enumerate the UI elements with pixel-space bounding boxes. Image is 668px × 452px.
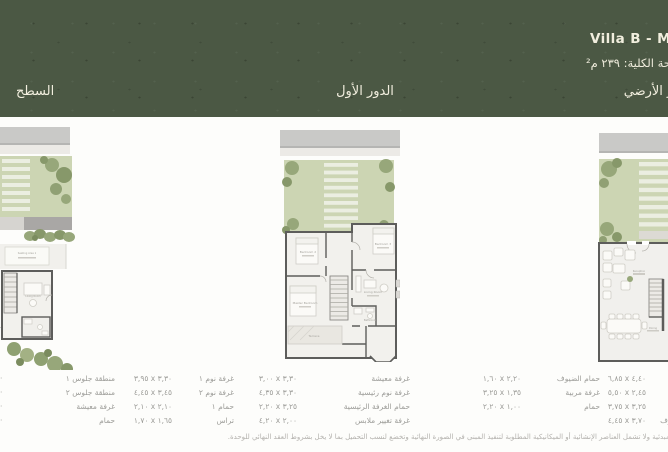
roof-living-label: Living Room bbox=[25, 294, 41, 298]
legend-ground-b-labels: غرفة الضيوف bbox=[645, 372, 668, 428]
roof-shrubs bbox=[7, 342, 73, 370]
hedge-row bbox=[24, 229, 75, 242]
bathroom-label: Bathroom bbox=[364, 318, 377, 322]
disclaimer-text: المساحات المبينة أعلاه مبدئية ولا تشمل ا… bbox=[228, 433, 668, 441]
floor-label-first: الدور الأول bbox=[320, 84, 410, 99]
legend-first-a-labels: غرفة نوم ١ غرفة نوم ٢ حمام ١ تراس bbox=[186, 372, 234, 428]
master-bedroom-label: Master Bedroom bbox=[293, 301, 318, 305]
legend-ground-a-dims: ١,٦٠ x ٢,٢٠ ٣,٢٥ x ١,٣٥ ٢,٢٠ x ١,٠٠ bbox=[478, 372, 526, 428]
bedroom3-label: Bedroom 3 bbox=[375, 242, 392, 246]
legend-clipped-dims-roof: · · · · bbox=[0, 372, 5, 428]
reception-label: Reception bbox=[633, 269, 646, 273]
floor-label-ground: الدور الأرضي bbox=[624, 84, 668, 99]
legend-row: منطقة جلوس ٢ bbox=[55, 386, 115, 400]
ground-floor-plan: Reception Dining bbox=[597, 133, 668, 369]
pergola-stripes bbox=[324, 163, 358, 228]
legend-row: حمام bbox=[55, 414, 115, 428]
villa-title: Villa B - M bbox=[590, 31, 668, 47]
total-area-label: المساحة الكلية: ٢٣٩ م² bbox=[586, 56, 668, 70]
bay-window bbox=[370, 356, 396, 362]
legend-roof-labels: منطقة جلوس ١ منطقة جلوس ٢ غرفة معيشة حما… bbox=[55, 372, 115, 428]
living-room-label: Living Room bbox=[364, 290, 382, 294]
header-band: Villa B - M المساحة الكلية: ٢٣٩ م² السطح… bbox=[0, 0, 668, 117]
roof-plan: Seating Area 1 Living Room منطقة جلوس bbox=[0, 125, 75, 374]
floor-label-roof: السطح bbox=[16, 84, 54, 99]
bedroom2-label: Bedroom 2 bbox=[300, 250, 317, 254]
legend-first-a-dims: ٣,٩٥ x ٣,٣٠ ٤,٤٥ x ٣,٤٥ ٢,١٠ x ٢,١٠ ١,٧٠… bbox=[128, 372, 178, 428]
first-floor-drawing: Bedroom 2 Bedroom 3 Master Bedroom Livin… bbox=[280, 130, 400, 362]
roof-plan-drawing: Seating Area 1 Living Room منطقة جلوس bbox=[0, 125, 75, 370]
legend-row: غرفة معيشة bbox=[55, 400, 115, 414]
first-floor-plan: Bedroom 2 Bedroom 3 Master Bedroom Livin… bbox=[280, 130, 400, 366]
legend-ground-a-labels: حمام الضيوف غرفة مربية حمام bbox=[536, 372, 600, 428]
legend-first-b-labels: غرفة معيشة غرفة نوم رئيسية حمام الغرفة ا… bbox=[328, 372, 410, 428]
legend-first-b-dims: ٣,٠٠ x ٣,٣٠ ٤,٣٥ x ٣,٣٠ ٢,٢٠ x ٣,٢٥ ٤,٢٠… bbox=[254, 372, 302, 428]
legend-row: منطقة جلوس ١ bbox=[55, 372, 115, 386]
terrace-label: Terrace bbox=[308, 334, 320, 338]
ground-floor-drawing: Reception Dining bbox=[597, 133, 668, 365]
roof-seating-label: Seating Area 1 bbox=[18, 251, 37, 255]
dining-label: Dining bbox=[649, 326, 657, 330]
floor-plan-sheet: Villa B - M المساحة الكلية: ٢٣٩ م² السطح… bbox=[0, 0, 668, 452]
